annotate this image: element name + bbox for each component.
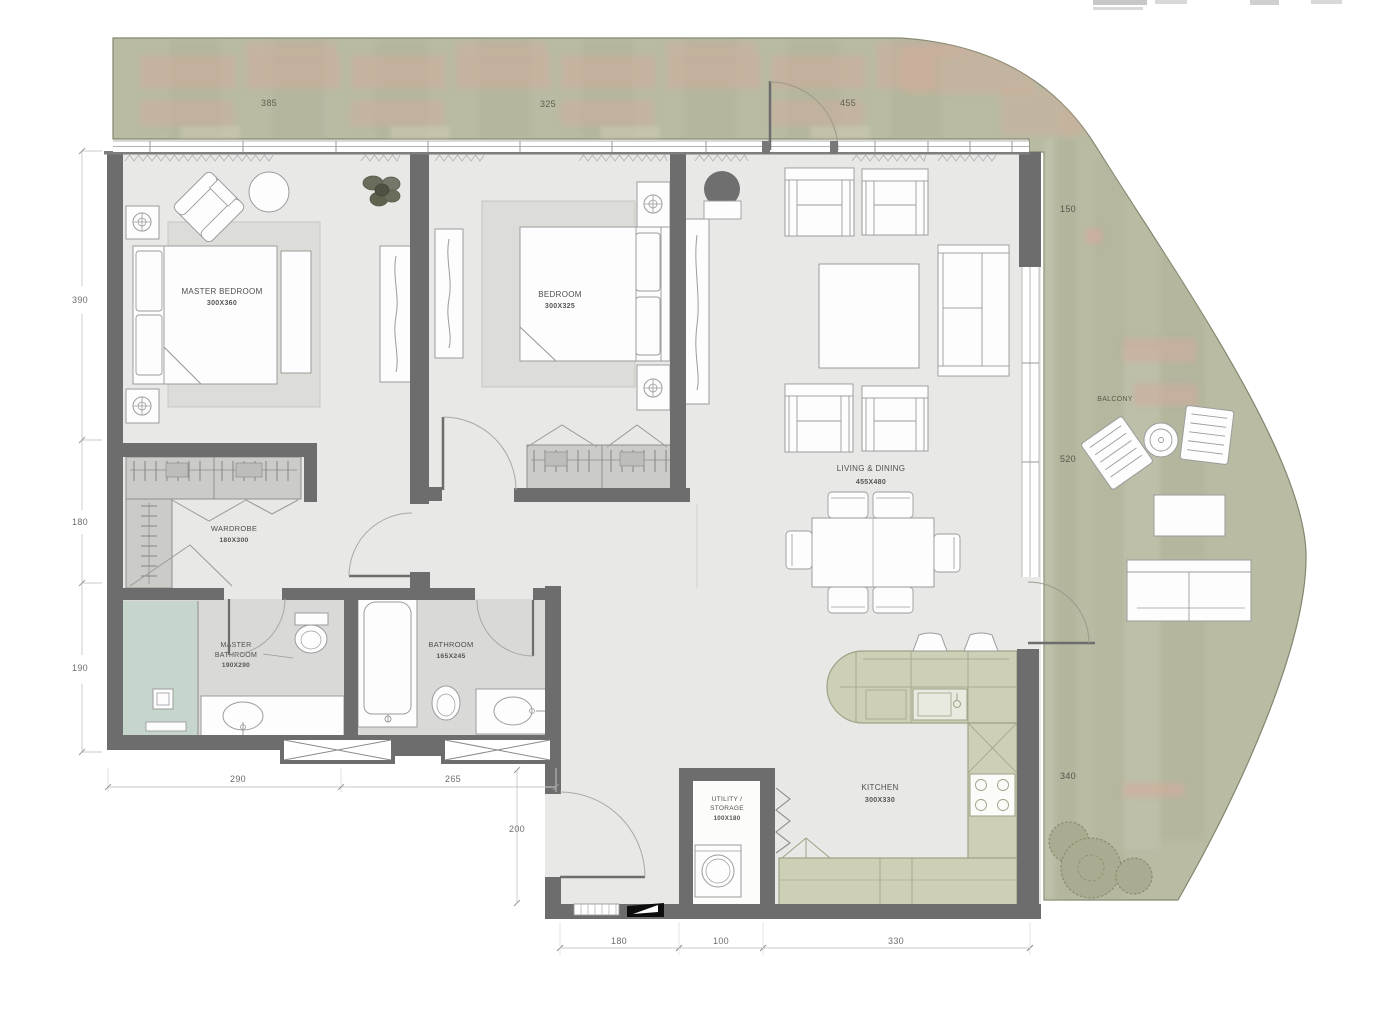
svg-text:385: 385 bbox=[261, 98, 277, 108]
svg-text:300X330: 300X330 bbox=[865, 797, 895, 804]
svg-text:BEDROOM: BEDROOM bbox=[538, 290, 581, 299]
svg-text:290: 290 bbox=[230, 774, 246, 784]
svg-text:MASTER: MASTER bbox=[221, 642, 252, 649]
svg-text:165X245: 165X245 bbox=[436, 653, 465, 660]
svg-text:BALCONY: BALCONY bbox=[1097, 396, 1133, 403]
svg-text:520: 520 bbox=[1060, 454, 1076, 464]
svg-text:LIVING & DINING: LIVING & DINING bbox=[837, 464, 906, 473]
svg-text:390: 390 bbox=[72, 295, 88, 305]
svg-text:455: 455 bbox=[840, 98, 856, 108]
svg-text:150: 150 bbox=[1060, 204, 1076, 214]
svg-text:MASTER BEDROOM: MASTER BEDROOM bbox=[181, 287, 262, 296]
svg-text:100: 100 bbox=[713, 936, 729, 946]
svg-text:UTILITY /: UTILITY / bbox=[712, 796, 742, 803]
svg-text:100X180: 100X180 bbox=[714, 815, 741, 822]
svg-text:200: 200 bbox=[509, 824, 525, 834]
svg-text:BATHROOM: BATHROOM bbox=[428, 640, 473, 649]
svg-text:455X480: 455X480 bbox=[856, 479, 886, 486]
svg-text:325: 325 bbox=[540, 99, 556, 109]
svg-text:190X290: 190X290 bbox=[222, 662, 250, 669]
svg-text:180X300: 180X300 bbox=[219, 537, 248, 544]
svg-text:BATHROOM: BATHROOM bbox=[215, 652, 257, 659]
svg-text:265: 265 bbox=[445, 774, 461, 784]
svg-text:STORAGE: STORAGE bbox=[710, 805, 744, 812]
svg-text:300X325: 300X325 bbox=[545, 303, 575, 310]
svg-text:KITCHEN: KITCHEN bbox=[861, 783, 898, 792]
svg-text:180: 180 bbox=[611, 936, 627, 946]
svg-text:330: 330 bbox=[888, 936, 904, 946]
svg-text:180: 180 bbox=[72, 517, 88, 527]
svg-text:340: 340 bbox=[1060, 771, 1076, 781]
svg-text:190: 190 bbox=[72, 663, 88, 673]
svg-text:WARDROBE: WARDROBE bbox=[211, 524, 257, 533]
svg-text:300X360: 300X360 bbox=[207, 300, 237, 307]
